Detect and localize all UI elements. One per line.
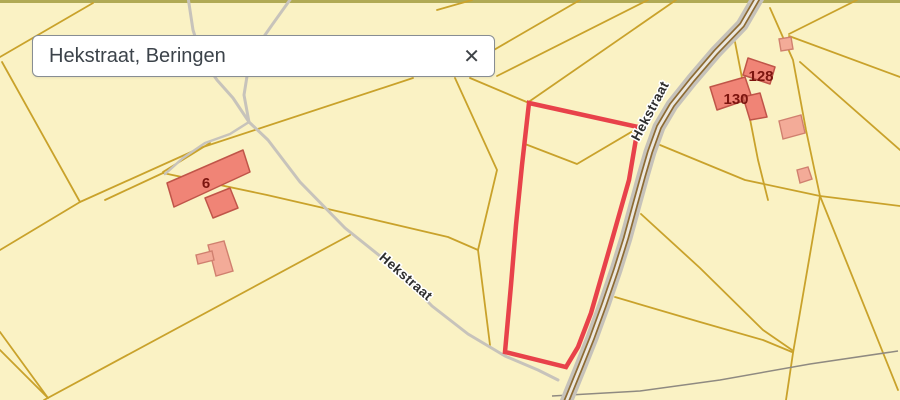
search-input[interactable] (49, 45, 461, 68)
house-number-128: 128 (748, 68, 773, 85)
search-box[interactable]: ✕ (32, 35, 495, 77)
annex-building (779, 37, 793, 51)
clear-search-icon[interactable]: ✕ (461, 46, 482, 66)
house-number-6: 6 (202, 175, 210, 192)
house-number-130: 130 (723, 91, 748, 108)
map-viewport[interactable]: Hekstraat Hekstraat 6 128 130 ✕ (0, 0, 900, 400)
